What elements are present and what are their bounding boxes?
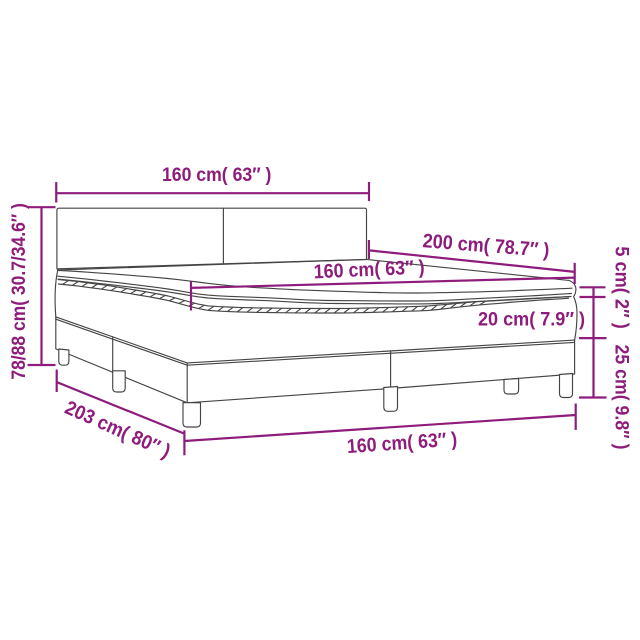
svg-text:78/88 cm( 30.7/34.6″ ): 78/88 cm( 30.7/34.6″ ) — [8, 203, 30, 380]
svg-text:25 cm( 9.8″ ): 25 cm( 9.8″ ) — [610, 345, 632, 450]
svg-text:5 cm( 2″ ): 5 cm( 2″ ) — [610, 246, 632, 329]
svg-text:20 cm( 7.9″ ): 20 cm( 7.9″ ) — [478, 308, 585, 330]
svg-text:160 cm( 63″ ): 160 cm( 63″ ) — [162, 164, 272, 186]
